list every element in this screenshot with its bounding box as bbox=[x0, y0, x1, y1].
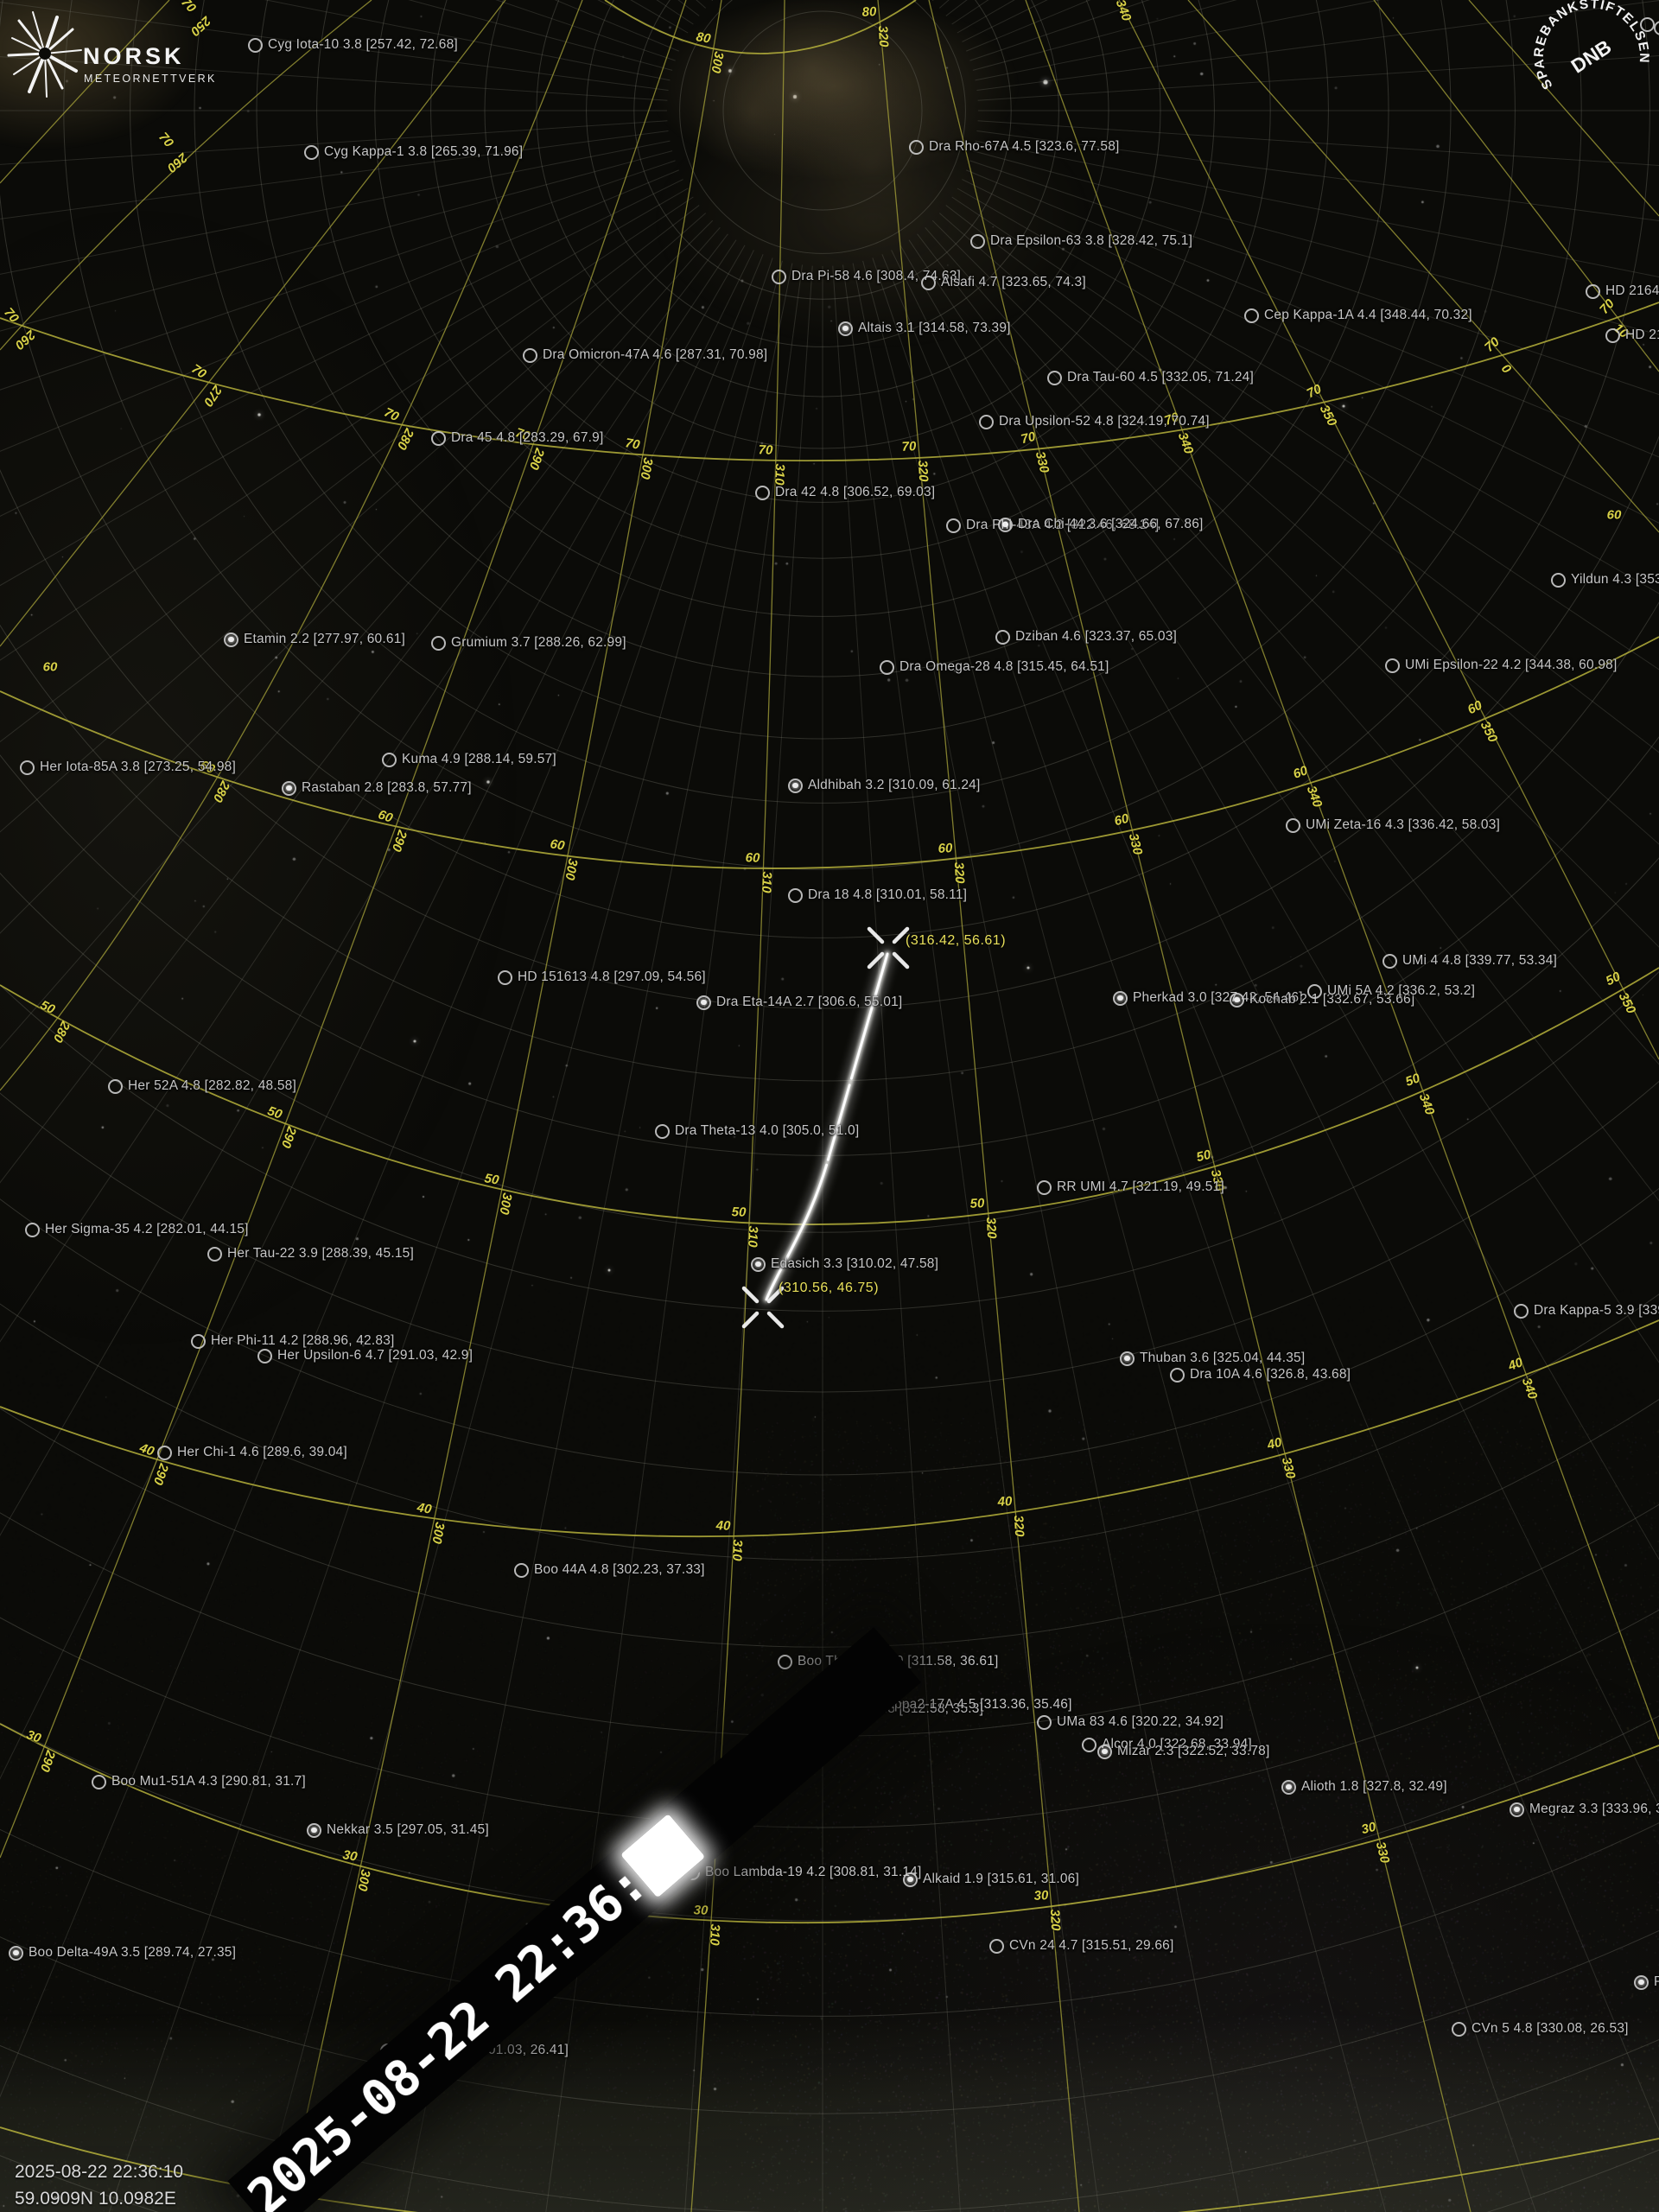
star-label-text: Her Phi-11 4.2 [288.96, 42.83] bbox=[211, 1333, 395, 1349]
star-label-text: Her Upsilon-6 4.7 [291.03, 42.9] bbox=[277, 1348, 473, 1363]
star-icon bbox=[92, 1775, 106, 1789]
grid-tick-label: 60 bbox=[43, 660, 58, 675]
star-label-text: Dziban 4.6 [323.37, 65.03] bbox=[1015, 629, 1177, 645]
grid-tick-label: 310 bbox=[772, 463, 787, 486]
grid-tick-label: 320 bbox=[875, 25, 891, 48]
star-icon bbox=[772, 270, 786, 284]
star-icon bbox=[1170, 1368, 1185, 1382]
star-label-text: Dra 10A 4.6 [326.8, 43.68] bbox=[1190, 1367, 1351, 1382]
star-label-text: Her Tau-22 3.9 [288.39, 45.15] bbox=[227, 1246, 414, 1262]
star-icon bbox=[523, 348, 537, 363]
star-icon bbox=[282, 781, 296, 796]
grid-tick-label: 30 bbox=[1033, 1888, 1049, 1904]
star-label-text: Phecda 2.4 bbox=[1654, 1974, 1659, 1990]
star-icon bbox=[1586, 284, 1600, 299]
star-label-text: Dra Eta-14A 2.7 [306.6, 55.01] bbox=[716, 995, 902, 1010]
star-label-text: Etamin 2.2 [277.97, 60.61] bbox=[244, 632, 405, 647]
star-icon bbox=[1281, 1780, 1296, 1795]
star-icon bbox=[909, 140, 924, 155]
star-icon bbox=[1244, 308, 1259, 323]
grid-tick-label: 320 bbox=[983, 1217, 999, 1239]
star-label-text: Cyg Iota-10 3.8 [257.42, 72.68] bbox=[268, 37, 458, 53]
grid-tick-label: 70 bbox=[901, 440, 917, 455]
star-label-text: UMa 83 4.6 [320.22, 34.92] bbox=[1057, 1714, 1224, 1730]
grid-tick-label: 320 bbox=[1011, 1515, 1027, 1537]
star-label-text: Dra 45 4.8 [283.29, 67.9] bbox=[451, 430, 603, 446]
star-icon bbox=[431, 636, 446, 651]
star-label-text: Boo 44A 4.8 [302.23, 37.33] bbox=[534, 1562, 705, 1578]
star-label-text: Boo Lambda-19 4.2 [308.81, 31.14] bbox=[705, 1865, 921, 1880]
grid-tick-label: 40 bbox=[716, 1518, 731, 1534]
star-label-text: HD 216446 4.7 bbox=[1605, 283, 1659, 299]
star-label-text: HD 151613 4.8 [297.09, 54.56] bbox=[518, 969, 706, 985]
star-label-text: CVn 5 4.8 [330.08, 26.53] bbox=[1471, 2021, 1629, 2037]
star-icon bbox=[1510, 1802, 1524, 1817]
grid-tick-label: 310 bbox=[707, 1923, 722, 1946]
star-label-text: Yildun 4.3 [353.95, 67.1] bbox=[1571, 572, 1659, 588]
star-icon bbox=[1047, 371, 1062, 385]
grid-tick-label: 60 bbox=[746, 850, 760, 866]
star-icon bbox=[995, 630, 1010, 645]
star-label-text: Her Iota-85A 3.8 [273.25, 54.98] bbox=[40, 760, 236, 775]
star-icon bbox=[1382, 954, 1397, 969]
grid-tick-label: 320 bbox=[951, 861, 967, 884]
star-label-text: RR UMI 4.7 [321.19, 49.51] bbox=[1057, 1179, 1224, 1195]
star-icon bbox=[751, 1257, 766, 1272]
star-icon bbox=[514, 1563, 529, 1578]
star-icon bbox=[1452, 2022, 1466, 2037]
star-icon bbox=[382, 753, 397, 767]
star-icon bbox=[778, 1655, 792, 1669]
star-icon bbox=[157, 1446, 172, 1460]
star-icon bbox=[921, 276, 936, 290]
grid-tick-label: 50 bbox=[970, 1196, 986, 1211]
star-icon bbox=[1385, 658, 1400, 673]
grid-tick-label: 320 bbox=[915, 461, 931, 483]
star-label-text: Mizar 2.3 [322.52, 33.78] bbox=[1117, 1744, 1269, 1759]
star-icon bbox=[998, 518, 1013, 532]
star-icon bbox=[970, 234, 985, 249]
star-label-text: Grumium 3.7 [288.26, 62.99] bbox=[451, 635, 626, 651]
grid-tick-label: 40 bbox=[416, 1500, 432, 1517]
grid-tick-label: 60 bbox=[1607, 508, 1622, 523]
star-label-text: Dra Chi-44 3.6 [324.66, 67.86] bbox=[1018, 517, 1204, 532]
star-label-text: Alioth 1.8 [327.8, 32.49] bbox=[1301, 1779, 1447, 1795]
dnb-ring-logo: SPAREBANKSTIFTELSEN DNB bbox=[1522, 0, 1659, 128]
star-icon bbox=[25, 1223, 40, 1237]
star-icon bbox=[224, 632, 238, 647]
star-label-text: Nekkar 3.5 [297.05, 31.45] bbox=[327, 1822, 489, 1838]
meteor-coordinate-label: (316.42, 56.61) bbox=[906, 933, 1006, 949]
grid-tick-label: 310 bbox=[760, 871, 775, 893]
star-icon bbox=[1120, 1351, 1135, 1366]
star-icon bbox=[1605, 328, 1620, 343]
meteor-coordinate-label: (310.56, 46.75) bbox=[779, 1281, 879, 1296]
star-icon bbox=[1230, 993, 1244, 1007]
grid-tick-label: 40 bbox=[997, 1494, 1013, 1510]
footer-timestamp: 2025-08-22 22:36:10 bbox=[15, 2158, 183, 2185]
star-label-text: Dra Omicron-47A 4.6 [287.31, 70.98] bbox=[543, 347, 767, 363]
norsk-logo-subtitle: METEORNETTVERK bbox=[84, 73, 217, 85]
star-label-text: Boo Mu1-51A 4.3 [290.81, 31.7] bbox=[111, 1774, 306, 1789]
star-icon bbox=[1307, 984, 1322, 999]
star-icon bbox=[903, 1872, 918, 1887]
star-icon bbox=[880, 660, 894, 675]
star-label-text: Her Chi-1 4.6 [289.6, 39.04] bbox=[177, 1445, 347, 1460]
star-icon bbox=[1514, 1304, 1529, 1319]
star-label-text: Boo Delta-49A 3.5 [289.74, 27.35] bbox=[29, 1945, 236, 1961]
star-icon bbox=[1551, 573, 1566, 588]
grid-tick-label: 30 bbox=[342, 1847, 359, 1865]
star-label-text: HD 21732 4.8 bbox=[1625, 327, 1659, 343]
star-label-text: Dra Upsilon-52 4.8 [324.19, 70.74] bbox=[999, 414, 1210, 429]
norsk-meteornettverk-logo: NORSK METEORNETTVERK bbox=[7, 9, 85, 112]
norsk-logo-title: NORSK bbox=[83, 43, 185, 70]
chart-overlay bbox=[0, 0, 1659, 2212]
star-icon bbox=[696, 995, 711, 1010]
star-label-text: UMi Zeta-16 4.3 [336.42, 58.03] bbox=[1306, 817, 1500, 833]
star-icon bbox=[257, 1349, 272, 1363]
star-label-text: Kuma 4.9 [288.14, 59.57] bbox=[402, 752, 556, 767]
star-label-text: UMi 5A 4.2 [336.2, 53.2] bbox=[1327, 983, 1475, 999]
grid-tick-label: 80 bbox=[862, 4, 878, 20]
star-icon bbox=[838, 321, 853, 336]
frame-footer: 2025-08-22 22:36:10 59.0909N 10.0982E bbox=[15, 2158, 183, 2212]
star-icon bbox=[307, 1823, 321, 1838]
star-label-text: Dra Epsilon-63 3.8 [328.42, 75.1] bbox=[990, 233, 1192, 249]
grid-tick-label: 80 bbox=[695, 29, 711, 47]
star-icon bbox=[1634, 1975, 1649, 1990]
grid-tick-label: 50 bbox=[731, 1205, 746, 1220]
star-label-text: Aldhibah 3.2 [310.09, 61.24] bbox=[808, 778, 981, 793]
star-icon bbox=[1082, 1738, 1096, 1752]
grid-tick-label: 310 bbox=[729, 1539, 745, 1561]
star-label-text: Rastaban 2.8 [283.8, 57.77] bbox=[302, 780, 472, 796]
star-label-text: UMi 4 4.8 [339.77, 53.34] bbox=[1402, 953, 1557, 969]
star-icon bbox=[431, 431, 446, 446]
star-icon bbox=[498, 970, 512, 985]
star-label-text: Megraz 3.3 [333.96, 31.05] bbox=[1529, 1802, 1659, 1817]
star-label-text: Dra Kappa-5 3.9 [339.22, 45.0] bbox=[1534, 1303, 1659, 1319]
grid-tick-label: 60 bbox=[938, 841, 953, 856]
star-label-text: Dra Theta-13 4.0 [305.0, 51.0] bbox=[675, 1123, 859, 1139]
star-icon bbox=[788, 779, 803, 793]
star-label-text: Her 52A 4.8 [282.82, 48.58] bbox=[128, 1078, 296, 1094]
grid-tick-label: 30 bbox=[693, 1903, 708, 1918]
grid-tick-label: 320 bbox=[1046, 1909, 1062, 1931]
allsky-camera-frame: 2903030030310303203033030290403004031040… bbox=[0, 0, 1659, 2212]
footer-coordinates: 59.0909N 10.0982E bbox=[15, 2185, 183, 2212]
grid-tick-label: 60 bbox=[549, 836, 565, 854]
star-label-text: Thuban 3.6 [325.04, 44.35] bbox=[1140, 1351, 1305, 1366]
grid-tick-label: 70 bbox=[624, 436, 640, 454]
star-icon bbox=[1097, 1745, 1112, 1759]
star-label-text: Alkaid 1.9 [315.61, 31.06] bbox=[923, 1872, 1079, 1887]
star-icon bbox=[989, 1939, 1004, 1954]
star-label-text: UMi Epsilon-22 4.2 [344.38, 60.98] bbox=[1405, 658, 1617, 673]
sponsor-logo: SPAREBANKSTIFTELSEN DNB bbox=[1522, 0, 1659, 132]
star-icon bbox=[1113, 991, 1128, 1006]
star-icon bbox=[108, 1079, 123, 1094]
star-icon bbox=[248, 38, 263, 53]
star-label-text: CVn 24 4.7 [315.51, 29.66] bbox=[1009, 1938, 1173, 1954]
star-label-text: Edasich 3.3 [310.02, 47.58] bbox=[771, 1256, 938, 1272]
star-icon bbox=[979, 415, 994, 429]
star-icon bbox=[655, 1124, 670, 1139]
star-label-text: Altais 3.1 [314.58, 73.39] bbox=[858, 321, 1011, 336]
star-icon bbox=[788, 888, 803, 903]
star-icon bbox=[207, 1247, 222, 1262]
star-icon bbox=[1037, 1180, 1052, 1195]
star-label-text: Cyg Kappa-1 3.8 [265.39, 71.96] bbox=[324, 144, 523, 160]
star-label-text: Dra Omega-28 4.8 [315.45, 64.51] bbox=[899, 659, 1109, 675]
grid-tick-label: 50 bbox=[483, 1171, 499, 1188]
grid-tick-label: 40 bbox=[1266, 1434, 1283, 1452]
star-icon bbox=[1286, 818, 1300, 833]
star-label-text: Dra Rho-67A 4.5 [323.6, 77.58] bbox=[929, 139, 1120, 155]
star-icon bbox=[1037, 1715, 1052, 1730]
star-label-text: Dra Tau-60 4.5 [332.05, 71.24] bbox=[1067, 370, 1254, 385]
star-label-text: Her Sigma-35 4.2 [282.01, 44.15] bbox=[45, 1222, 249, 1237]
star-icon bbox=[20, 760, 35, 775]
star-icon bbox=[9, 1946, 23, 1961]
sponsor-center-text: DNB bbox=[1567, 35, 1615, 78]
star-label-text: Dra 18 4.8 [310.01, 58.11] bbox=[808, 887, 967, 903]
star-label-text: Dra 42 4.8 [306.52, 69.03] bbox=[775, 485, 935, 500]
star-icon bbox=[755, 486, 770, 500]
star-label-text: Cep Kappa-1A 4.4 [348.44, 70.32] bbox=[1264, 308, 1472, 323]
grid-tick-label: 70 bbox=[758, 442, 772, 458]
star-icon bbox=[304, 145, 319, 160]
star-icon bbox=[191, 1334, 206, 1349]
star-icon bbox=[946, 518, 961, 533]
grid-tick-label: 310 bbox=[745, 1225, 760, 1248]
star-label-text: Alsafi 4.7 [323.65, 74.3] bbox=[941, 275, 1086, 290]
starburst-icon bbox=[7, 9, 85, 108]
